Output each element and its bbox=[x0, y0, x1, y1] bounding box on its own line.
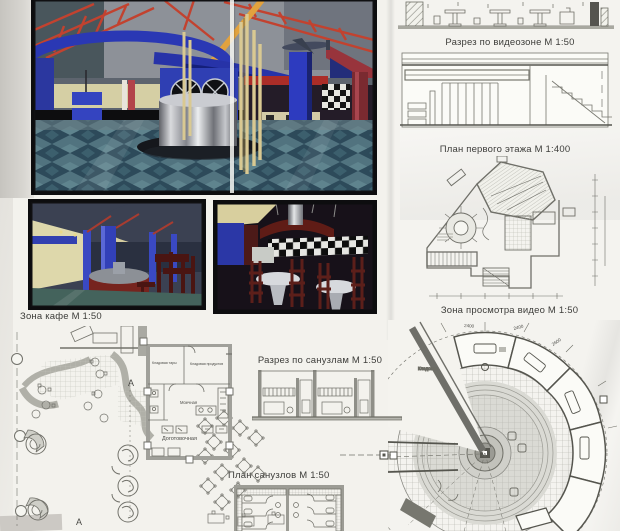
dim-2600: 2600 bbox=[551, 337, 563, 347]
room-label-storage-containers: Кладовая тары bbox=[152, 361, 177, 365]
bar-interior-rendering bbox=[213, 200, 377, 314]
grid-zone bbox=[505, 216, 531, 250]
board-edge bbox=[0, 0, 34, 198]
round-booths bbox=[112, 445, 138, 522]
bar-render-image bbox=[216, 203, 374, 311]
stage-planters bbox=[24, 430, 48, 520]
first-floor-plan-drawing bbox=[413, 156, 618, 304]
label-cafe-zone: Зона кафе М 1:50 bbox=[20, 311, 102, 322]
label-video-zone-plan: Зона просмотра видео М 1:50 bbox=[412, 305, 607, 316]
cinema-hall-hex bbox=[477, 162, 555, 220]
presentation-board: Зона кафе М 1:50 Разрез по видеозоне М 1… bbox=[0, 0, 620, 531]
checker-band bbox=[268, 236, 368, 257]
stairs bbox=[483, 268, 509, 286]
left-wall-band bbox=[31, 236, 77, 244]
terrace-furniture bbox=[71, 326, 133, 353]
projector-cylinder bbox=[288, 203, 303, 225]
wc-section-drawing bbox=[252, 366, 402, 428]
label-first-floor-plan: План первого этажа М 1:400 bbox=[410, 144, 600, 155]
main-interior-rendering bbox=[31, 0, 377, 195]
label-video-section: Разрез по видеозоне М 1:50 bbox=[415, 37, 605, 48]
screen bbox=[252, 247, 274, 263]
tile-floor-a bbox=[38, 354, 120, 400]
dim-2400: 2400 bbox=[464, 323, 475, 329]
booth-row bbox=[427, 252, 477, 266]
lamp bbox=[59, 230, 62, 233]
corridor-connector bbox=[340, 446, 392, 462]
room-label-preparation: Доготовочная bbox=[162, 436, 197, 442]
axis-line bbox=[12, 332, 27, 526]
sheet-seam-shadow bbox=[386, 0, 395, 340]
cafe-zone-plan-drawing: Кладовая тары Кладовая продуктов Моечная… bbox=[0, 326, 430, 531]
blue-panel bbox=[216, 223, 244, 265]
print-seam bbox=[230, 0, 234, 193]
dim-2400b: 2400 bbox=[513, 324, 524, 331]
cafe-interior-rendering bbox=[28, 199, 206, 310]
video-zone-section-drawing bbox=[400, 51, 612, 133]
section-marker-a-bottom: А bbox=[76, 517, 82, 527]
main-render-image bbox=[34, 0, 374, 192]
room-label-washing: Моечная bbox=[180, 400, 197, 405]
cafe-render-image bbox=[31, 202, 203, 307]
video-zone-section-strip bbox=[398, 0, 614, 33]
section-marker-a-top: А bbox=[128, 378, 134, 388]
pedestal-tables bbox=[445, 10, 550, 26]
wc-plan-drawing bbox=[226, 483, 346, 531]
lamp bbox=[73, 233, 76, 236]
room-label-storage-food: Кладовая продуктов bbox=[190, 362, 223, 366]
